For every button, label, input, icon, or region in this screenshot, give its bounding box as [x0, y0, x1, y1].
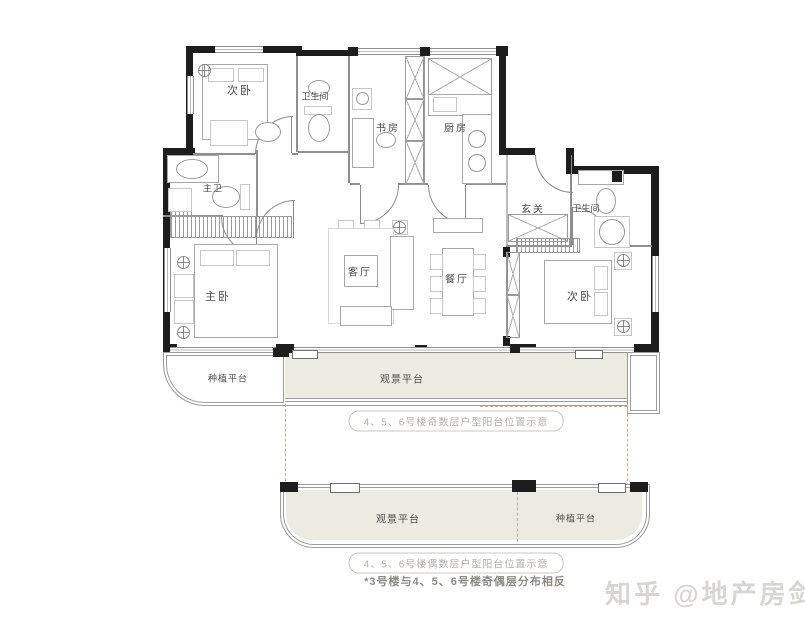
- room-label-bath-right: 卫生间: [572, 202, 599, 215]
- window: [430, 48, 496, 55]
- room-label-dining: 餐厅: [445, 271, 469, 286]
- label-planting-platform-upper: 种植平台: [208, 372, 248, 385]
- wall-segment: [499, 52, 506, 154]
- pillow: [594, 292, 608, 316]
- alt-balcony-dashed-line: [480, 406, 627, 407]
- room-label-master-bath: 主卫: [203, 182, 223, 195]
- shaft-hatch: [405, 98, 425, 142]
- floor-plan-canvas: 次卧 卫生间 书房 厨房 主卫 玄关 卫生间 客厅 餐厅 主卧 次卧 种植平台 …: [0, 0, 805, 620]
- nightstand: [174, 300, 194, 324]
- shaft-hatch: [405, 56, 425, 100]
- window: [652, 256, 659, 312]
- nightstand: [174, 274, 194, 298]
- label-planting-platform-lower: 种植平台: [556, 512, 596, 525]
- wall-segment: [499, 148, 535, 155]
- balcony-pier: [512, 480, 536, 492]
- kitchen-flue-hatch: [428, 58, 492, 96]
- viewing-platform-upper-fill: [285, 353, 627, 401]
- stove-burner: [468, 154, 486, 172]
- window: [187, 76, 194, 114]
- plant: [356, 92, 369, 105]
- desk: [352, 118, 374, 168]
- wall-segment: [420, 47, 430, 56]
- watermark: 知乎 @地产房剑: [605, 574, 805, 611]
- room-label-bath-top: 卫生间: [301, 90, 328, 103]
- balcony-pier: [273, 348, 289, 357]
- balcony-pier: [630, 482, 648, 492]
- window: [358, 48, 420, 55]
- chair: [430, 254, 443, 270]
- note-text: *3号楼与4、5、6号楼奇偶层分布相反: [364, 573, 566, 589]
- pillow: [594, 266, 608, 290]
- ceiling-lamp-symbol: [617, 254, 630, 267]
- balcony-rail: [285, 398, 627, 406]
- platform-divider-dashed: [517, 492, 518, 542]
- caption-odd-floor-balcony: 4、5、6号楼奇数层户型阳台位置示意: [349, 411, 564, 432]
- window: [215, 46, 263, 53]
- bath-cabinet-dark: [612, 171, 622, 182]
- room-label-foyer: 玄关: [521, 201, 545, 216]
- interior-wall: [256, 150, 258, 217]
- pillow: [236, 250, 270, 266]
- bedroom-wardrobe-hatch: [516, 238, 580, 253]
- room-label-master-bedroom: 主卧: [205, 288, 231, 304]
- shaft-hatch: [405, 140, 425, 185]
- door-leaf: [360, 185, 361, 223]
- room-label-study: 书房: [376, 120, 400, 135]
- interior-wall: [350, 183, 360, 185]
- pillow: [238, 68, 264, 82]
- balcony-post: [598, 483, 626, 493]
- balcony-post: [330, 483, 360, 493]
- label-viewing-platform-upper: 观景平台: [380, 371, 424, 386]
- toilet-tank: [240, 184, 250, 210]
- washer-drum: [599, 219, 625, 245]
- caption-even-floor-balcony: 4、5、6号楼偶数层户型阳台位置示意: [349, 553, 564, 574]
- sideboard: [433, 218, 483, 233]
- kitchen-sink: [433, 97, 457, 112]
- study-door-arc: [360, 185, 399, 224]
- stove-burner: [468, 130, 486, 148]
- interior-wall: [348, 56, 350, 183]
- washer: [168, 188, 192, 212]
- sink: [176, 159, 208, 179]
- wall-segment: [296, 50, 354, 56]
- ceiling-lamp-symbol: [198, 64, 211, 77]
- room-label-bedroom-right: 次卧: [567, 288, 593, 304]
- balcony-post: [292, 350, 318, 359]
- shaft-hatch: [506, 252, 520, 296]
- right-platform-rail: [627, 352, 660, 414]
- chair: [473, 276, 486, 292]
- shaft-hatch: [506, 294, 520, 338]
- ceiling-lamp-symbol: [617, 320, 630, 333]
- door-leaf: [291, 116, 292, 153]
- hall-door-arc: [256, 200, 295, 239]
- pillow: [200, 250, 234, 266]
- sofa: [390, 236, 414, 310]
- alt-balcony-dashed-line: [285, 404, 286, 486]
- alt-balcony-dashed-line: [627, 404, 628, 486]
- entry-door-arc: [535, 155, 573, 193]
- balcony-pier: [280, 482, 298, 492]
- door-leaf: [571, 155, 572, 192]
- label-viewing-platform-lower: 观景平台: [376, 511, 420, 526]
- door-leaf: [293, 200, 294, 238]
- chair: [473, 298, 486, 314]
- balcony-post: [575, 350, 603, 359]
- room-label-kitchen: 厨房: [444, 120, 468, 135]
- toilet: [308, 114, 330, 142]
- pillow: [208, 68, 234, 82]
- stool: [255, 122, 281, 142]
- chair: [430, 298, 443, 314]
- ceiling-lamp-symbol: [177, 326, 190, 339]
- window: [164, 248, 171, 312]
- ceiling-lamp-symbol: [393, 221, 406, 234]
- ceiling-lamp-symbol: [177, 256, 190, 269]
- sofa-chaise: [340, 306, 392, 326]
- chair: [473, 254, 486, 270]
- bench: [210, 120, 248, 146]
- interior-wall: [296, 56, 298, 152]
- room-label-bedroom-top: 次卧: [227, 82, 253, 98]
- room-label-living: 客厅: [348, 264, 372, 279]
- chair: [430, 276, 443, 292]
- interior-wall: [298, 151, 348, 153]
- wall-segment: [348, 47, 358, 56]
